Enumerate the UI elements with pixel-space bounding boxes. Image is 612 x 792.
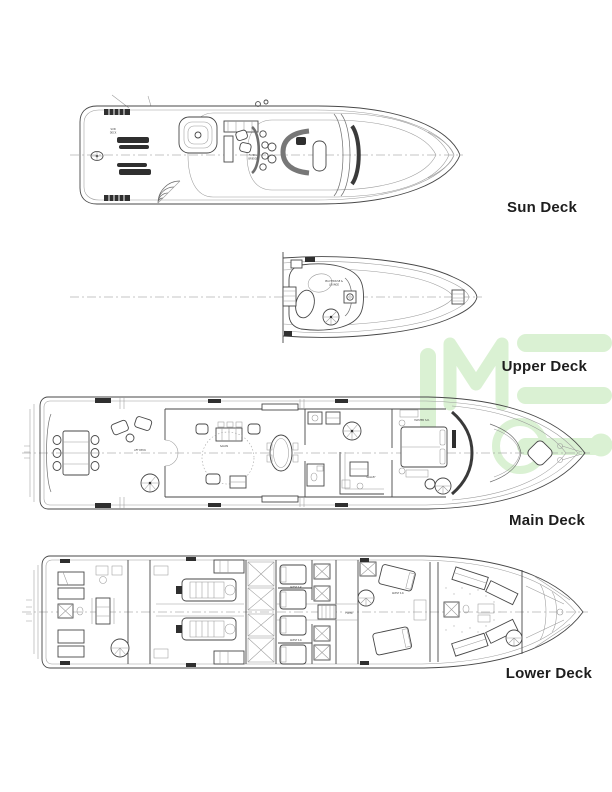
svg-text:GUEST S.R.: GUEST S.R. [290, 639, 303, 642]
aft-deck-label: AFT DECK [134, 449, 146, 452]
main-deck-plan: AFT DECK [22, 397, 590, 509]
stairs-spiral-upper [323, 309, 339, 325]
davit [91, 151, 103, 161]
sun-deck-label: SUN [110, 128, 115, 131]
flybridge-console [224, 121, 268, 173]
deck-label-upper-deck: Upper Deck [502, 358, 587, 375]
salon-label: SALON [220, 445, 228, 448]
guest-cabins: GUEST S.R. GUEST S.R. FOYER [278, 564, 353, 664]
pilothouse-label: PILOTHOUSE & [325, 280, 343, 283]
galley: GALLEY [340, 452, 384, 494]
deck-label-main-deck: Main Deck [509, 512, 585, 529]
crew-quarters-forward [444, 567, 522, 656]
flybridge-settee [268, 131, 326, 173]
sun-pads [117, 137, 151, 175]
jacuzzi [179, 117, 217, 153]
guest-sr-label: GUEST S.R. [290, 586, 303, 589]
galley-label: GALLEY [366, 476, 376, 479]
foyer-label: FOYER [345, 612, 353, 615]
deck-label-sun-deck: Sun Deck [507, 199, 577, 216]
deck-plans-page: SUN DECK [0, 0, 612, 792]
svg-text:DECK: DECK [110, 132, 117, 135]
upper-deck-plan: PILOTHOUSE & LOUNGE [70, 252, 482, 343]
mid-cabins: GUEST S.R. [358, 558, 426, 665]
dining-table [267, 435, 298, 471]
sun-deck-plan: SUN DECK [70, 95, 463, 204]
deck-label-lower-deck: Lower Deck [506, 665, 592, 682]
svg-text:BRIDGE: BRIDGE [248, 157, 258, 160]
master-sr-label: MASTER S.R. [414, 419, 429, 422]
stairs-spiral-main [343, 422, 361, 440]
svg-text:GUEST S.R.: GUEST S.R. [392, 592, 405, 595]
lower-deck-plan: GUEST S.R. GUEST S.R. FOYER GUEST S.R. [22, 556, 588, 668]
stairs-aft [158, 181, 180, 203]
day-head [307, 464, 324, 486]
svg-text:LOUNGE: LOUNGE [329, 284, 340, 287]
